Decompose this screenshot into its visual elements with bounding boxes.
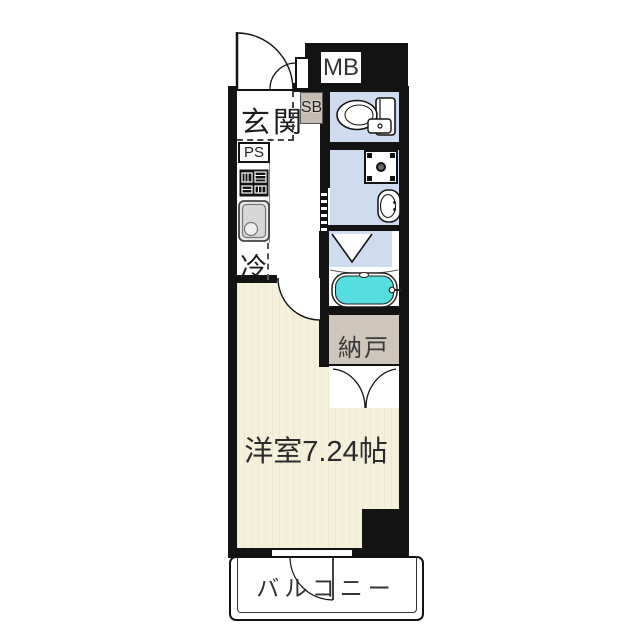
door-arcs-overlay <box>0 0 640 640</box>
balcony-door-arc <box>290 557 333 600</box>
entrance-door-arc <box>237 33 293 89</box>
double-door-icon-right <box>366 369 396 408</box>
double-door-icon-left <box>333 369 365 408</box>
floor-plan: MB SB PS 玄関 冷 納戸 洋室7.24帖 バルコニー <box>0 0 640 640</box>
entrance-child-door-panel <box>296 58 309 89</box>
